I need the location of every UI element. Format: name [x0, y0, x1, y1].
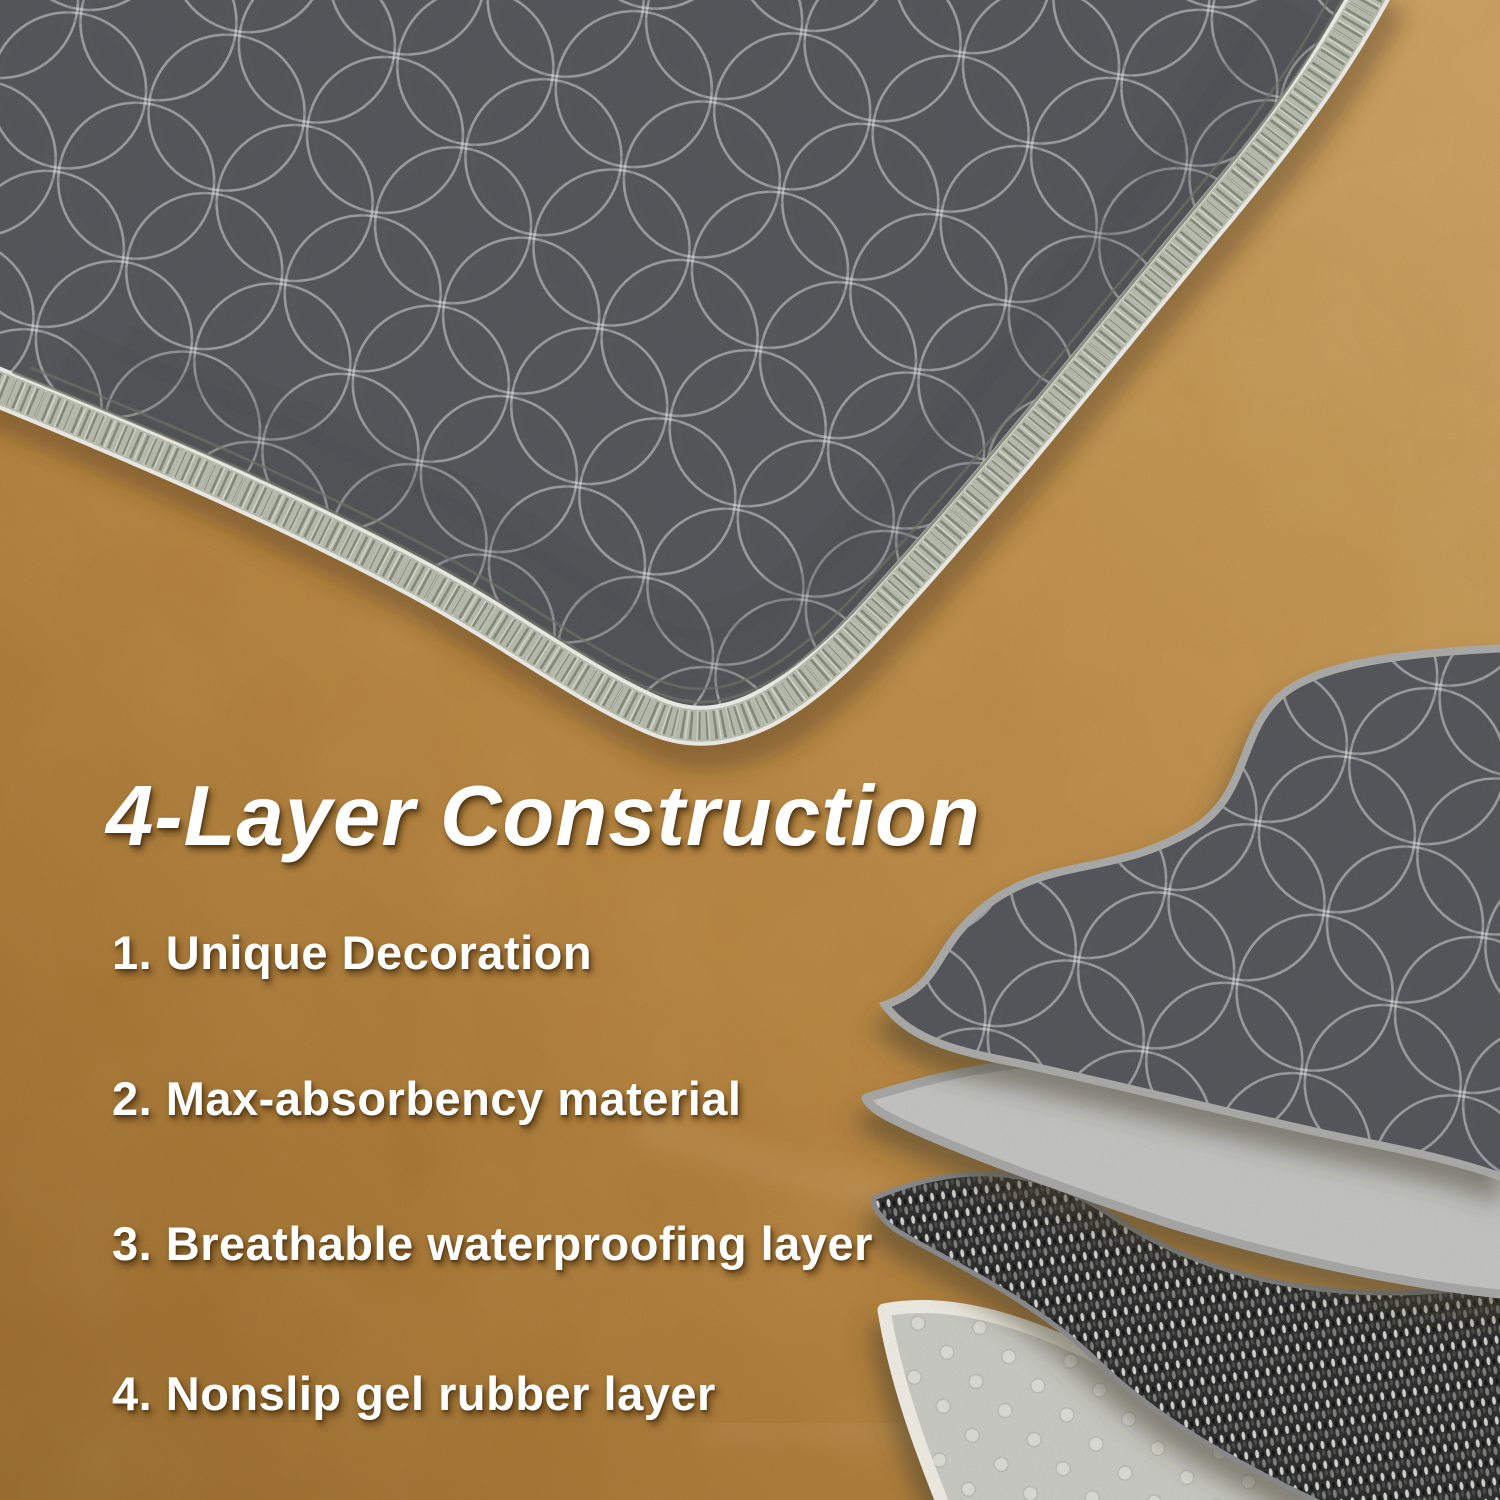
product-infographic: 4-Layer Construction 1. Unique Decoratio… [0, 0, 1500, 1500]
scene-illustration [0, 0, 1500, 1500]
feature-item-nonslip-layer: 4. Nonslip gel rubber layer [112, 1366, 716, 1421]
feature-item-max-absorbency: 2. Max-absorbency material [112, 1071, 742, 1126]
feature-item-waterproof-layer: 3. Breathable waterproofing layer [112, 1216, 873, 1271]
feature-item-unique-decoration: 1. Unique Decoration [112, 925, 592, 980]
photo-grain-overlay [0, 0, 1500, 1500]
headline-title: 4-Layer Construction [106, 768, 981, 866]
